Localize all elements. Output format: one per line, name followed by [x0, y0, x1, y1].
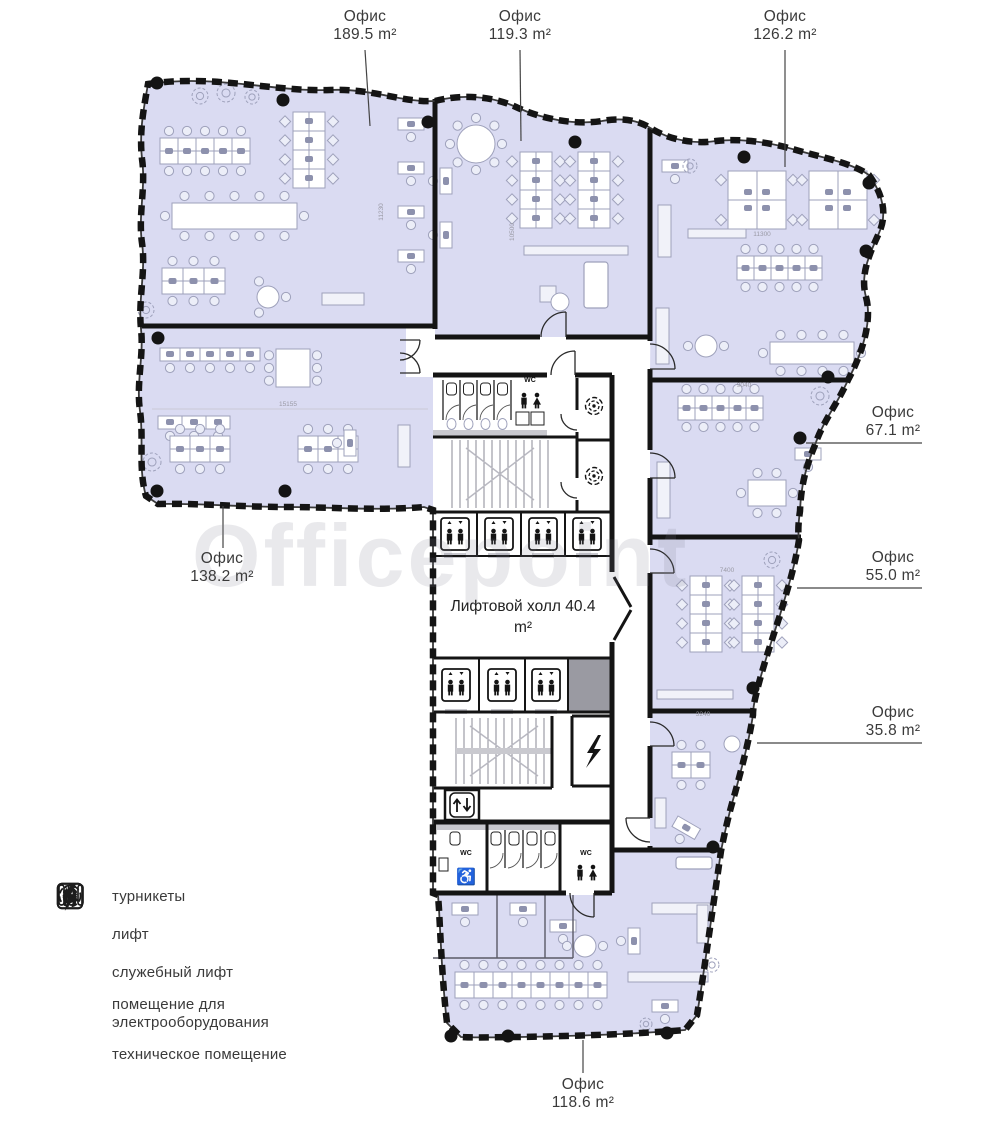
callout-office-35: Офис 35.8 m² — [818, 704, 968, 740]
legend: турникеты лифт служебный лифт помещение … — [56, 882, 290, 1078]
column — [707, 841, 720, 854]
elevator-icon — [532, 669, 560, 701]
office-label: Офис — [710, 8, 860, 26]
core-layer: WCWC♿WC — [433, 377, 612, 958]
callout-office-118: Офис 118.6 m² — [508, 1076, 658, 1112]
column — [152, 332, 165, 345]
office-label: Офис — [818, 549, 968, 567]
column — [151, 485, 164, 498]
callout-office-119: Офис 119.3 m² — [445, 8, 595, 44]
dimension-text: 11300 — [753, 231, 771, 238]
callout-office-126: Офис 126.2 m² — [710, 8, 860, 44]
office-area: 118.6 m² — [508, 1094, 658, 1112]
column — [860, 245, 873, 258]
office-label: Офис — [290, 8, 440, 26]
wc-label: WC — [580, 850, 592, 857]
dimension-text: 11230 — [378, 203, 385, 221]
lift-hall-label: Лифтовой холл 40.4 m² — [443, 596, 603, 638]
hall-name: Лифтовой холл — [451, 598, 561, 615]
wc-label: WC — [524, 377, 536, 384]
column — [822, 371, 835, 384]
legend-row-electrical: помещение для электрооборудования — [56, 996, 290, 1032]
legend-row-lift: лифт — [56, 920, 290, 950]
office-label: Офис — [508, 1076, 658, 1094]
office-area: 119.3 m² — [445, 26, 595, 44]
office-area: 35.8 m² — [818, 722, 968, 740]
column — [279, 485, 292, 498]
callout-office-138: Офис 138.2 m² — [147, 550, 297, 586]
gray-room — [568, 658, 612, 712]
callout-office-55: Офис 55.0 m² — [818, 549, 968, 585]
office-label: Офис — [445, 8, 595, 26]
dimension-text: 7400 — [720, 567, 735, 574]
legend-row-technical: техническое помещение — [56, 1040, 290, 1070]
office-area: 55.0 m² — [818, 567, 968, 585]
dimension-text: 9040 — [737, 382, 752, 389]
column — [747, 682, 760, 695]
office-area: 189.5 m² — [290, 26, 440, 44]
wc-label: WC — [460, 850, 472, 857]
wheelchair-icon: ♿ — [456, 867, 476, 886]
callout-office-67: Офис 67.1 m² — [818, 404, 968, 440]
column — [569, 136, 582, 149]
column — [422, 116, 435, 129]
office-label: Офис — [818, 404, 968, 422]
legend-label: лифт — [112, 926, 290, 944]
office-area: 67.1 m² — [818, 422, 968, 440]
technical-room-icon — [56, 1040, 90, 1070]
legend-row-service-lift: служебный лифт — [56, 958, 290, 988]
column — [738, 151, 751, 164]
elevator-icon — [56, 920, 90, 950]
technical-room-icon — [586, 468, 603, 485]
office-area: 138.2 m² — [147, 568, 297, 586]
technical-room-icon — [586, 398, 603, 415]
office-label: Офис — [147, 550, 297, 568]
column — [661, 1027, 674, 1040]
column — [277, 94, 290, 107]
office-label: Офис — [818, 704, 968, 722]
dimension-text: 3240 — [696, 711, 711, 718]
column — [151, 77, 164, 90]
electrical-room-icon — [586, 735, 601, 768]
column — [445, 1030, 458, 1043]
electrical-room-icon — [56, 999, 90, 1029]
service-elevator-icon — [56, 958, 90, 988]
legend-label: турникеты — [112, 888, 290, 906]
legend-label: служебный лифт — [112, 964, 290, 982]
column — [502, 1030, 515, 1043]
legend-label: помещение для электрооборудования — [112, 996, 290, 1032]
legend-row-turnstiles: турникеты — [56, 882, 290, 912]
column — [863, 177, 876, 190]
callout-office-189: Офис 189.5 m² — [290, 8, 440, 44]
floorplan-page: WCWC♿WC 11230105001515511300904074 — [0, 0, 1000, 1136]
office-area: 126.2 m² — [710, 26, 860, 44]
column — [794, 432, 807, 445]
legend-label: техническое помещение — [112, 1046, 290, 1064]
elevator-icon — [442, 669, 470, 701]
dimension-text: 15155 — [279, 401, 297, 408]
elevator-icon — [488, 669, 516, 701]
dimension-text: 10500 — [509, 223, 516, 241]
